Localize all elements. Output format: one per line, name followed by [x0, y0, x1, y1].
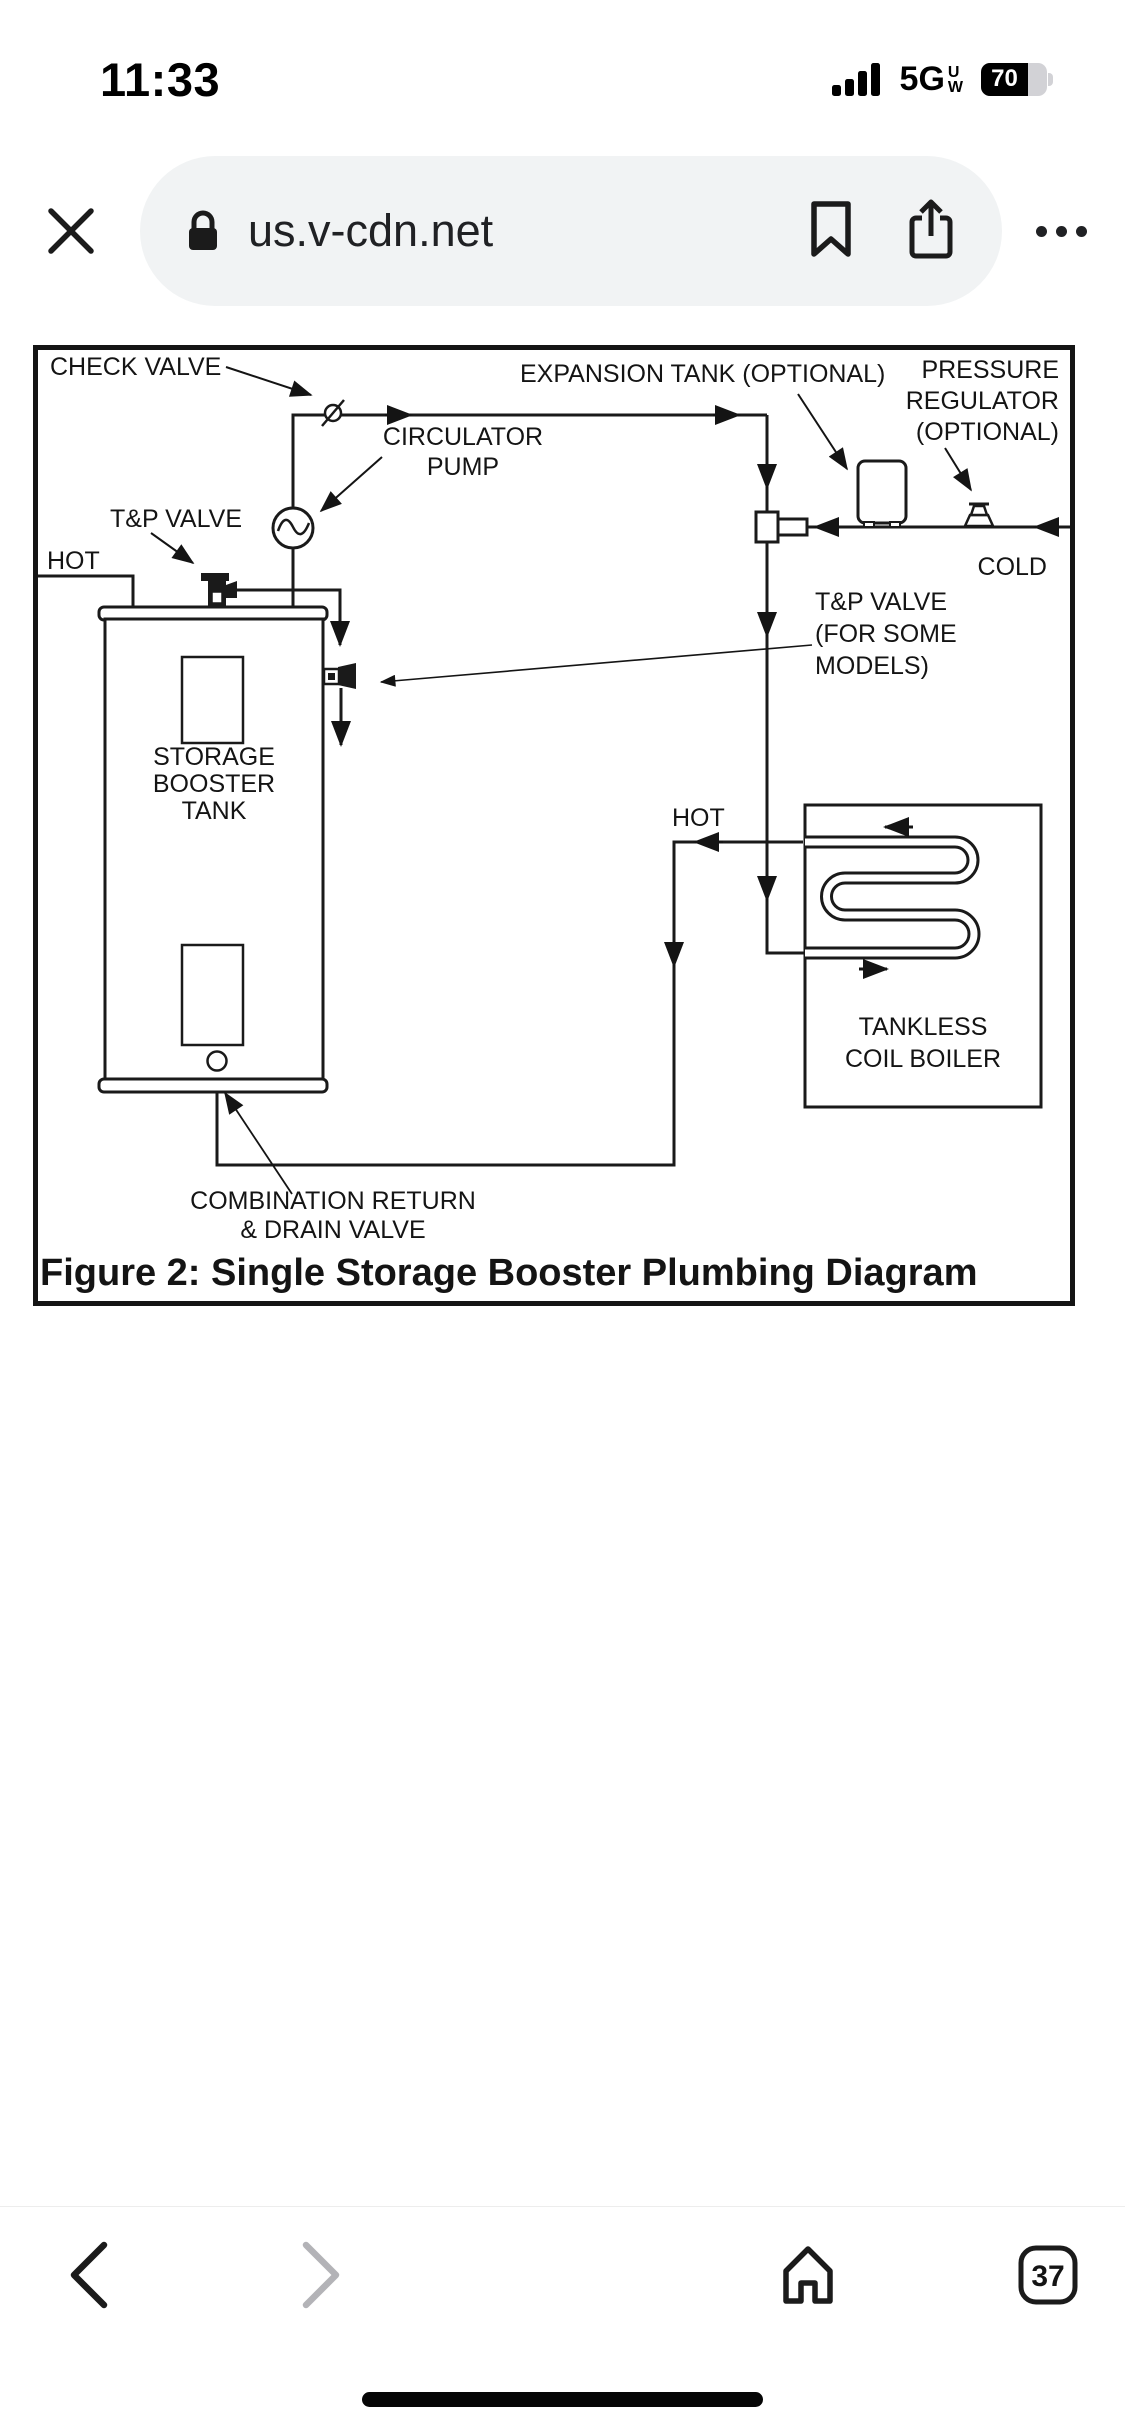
check-valve-symbol: [322, 400, 344, 426]
signal-bars-icon: [832, 61, 888, 97]
svg-text:COIL BOILER: COIL BOILER: [845, 1045, 1001, 1073]
label-expansion-tank: EXPANSION TANK (OPTIONAL): [520, 360, 885, 388]
svg-text:PUMP: PUMP: [427, 453, 499, 481]
browser-top-bar: us.v-cdn.net: [0, 152, 1125, 310]
circulator-pump-symbol: [273, 508, 313, 548]
label-hot-boiler: HOT: [672, 804, 725, 832]
home-indicator[interactable]: [362, 2392, 763, 2407]
label-tankless-coil-boiler: TANKLESS: [859, 1013, 988, 1041]
lock-icon: [186, 209, 220, 253]
tee-fitting-symbol: [756, 512, 807, 542]
drain-port: [208, 1052, 227, 1071]
battery-icon: 70: [981, 63, 1047, 96]
label-check-valve: CHECK VALVE: [50, 353, 221, 381]
figure-caption: Figure 2: Single Storage Booster Plumbin…: [40, 1252, 977, 1294]
chevron-right-icon: [300, 2239, 344, 2311]
share-button[interactable]: [906, 198, 956, 265]
tp-valve-symbol: [201, 573, 237, 607]
svg-text:(OPTIONAL): (OPTIONAL): [916, 418, 1059, 446]
chevron-left-icon: [66, 2239, 110, 2311]
svg-text:REGULATOR: REGULATOR: [906, 387, 1059, 415]
network-type: 5G U W: [900, 60, 963, 99]
bookmark-icon: [808, 200, 854, 258]
ellipsis-icon: [1036, 226, 1047, 237]
status-bar: 11:33 5G U W 70: [0, 48, 1125, 110]
network-label: 5G: [900, 60, 945, 99]
expansion-tank-symbol: [858, 461, 906, 527]
more-options-button[interactable]: [1036, 226, 1087, 237]
label-tp-valve: T&P VALVE: [110, 505, 242, 533]
label-cold: COLD: [978, 553, 1047, 581]
url-text: us.v-cdn.net: [248, 205, 808, 257]
share-icon: [906, 198, 956, 260]
status-icons: 5G U W 70: [832, 60, 1047, 99]
svg-text:MODELS): MODELS): [815, 652, 929, 680]
battery-percent: 70: [981, 63, 1028, 96]
svg-text:(FOR SOME: (FOR SOME: [815, 620, 957, 648]
home-icon: [774, 2241, 842, 2309]
tab-count-icon: 37: [1017, 2244, 1079, 2306]
label-tp-valve-some-models: T&P VALVE: [815, 588, 947, 616]
back-button[interactable]: [48, 2235, 128, 2315]
bookmark-button[interactable]: [808, 200, 854, 263]
label-storage-booster-tank: STORAGE: [153, 743, 275, 771]
tab-count: 37: [1031, 2260, 1064, 2293]
forward-button[interactable]: [282, 2235, 362, 2315]
url-field[interactable]: us.v-cdn.net: [140, 156, 1002, 306]
plumbing-diagram-image: CHECK VALVE EXPANSION TANK (OPTIONAL) PR…: [33, 345, 1075, 1307]
browser-bottom-toolbar: 37: [0, 2206, 1125, 2357]
status-time: 11:33: [100, 52, 220, 107]
upper-access-panel: [182, 657, 243, 743]
tab-switcher-button[interactable]: 37: [1008, 2235, 1088, 2315]
label-circulator-pump: CIRCULATOR: [383, 423, 543, 451]
lower-access-panel: [182, 945, 243, 1045]
home-button[interactable]: [768, 2235, 848, 2315]
close-icon: [43, 203, 99, 259]
close-button[interactable]: [36, 196, 106, 266]
tp-valve-side-symbol: [324, 663, 356, 689]
svg-text:TANK: TANK: [182, 797, 247, 825]
pressure-regulator-symbol: [965, 504, 993, 526]
svg-text:& DRAIN VALVE: & DRAIN VALVE: [240, 1216, 425, 1244]
label-hot-left: HOT: [47, 547, 100, 575]
plumbing-diagram: CHECK VALVE EXPANSION TANK (OPTIONAL) PR…: [33, 345, 1075, 1307]
label-combination-return: COMBINATION RETURN: [190, 1187, 476, 1215]
svg-text:BOOSTER: BOOSTER: [153, 770, 275, 798]
label-pressure-regulator: PRESSURE: [921, 356, 1059, 384]
network-sub-label: U W: [948, 65, 963, 95]
storage-booster-tank: [99, 607, 327, 1092]
